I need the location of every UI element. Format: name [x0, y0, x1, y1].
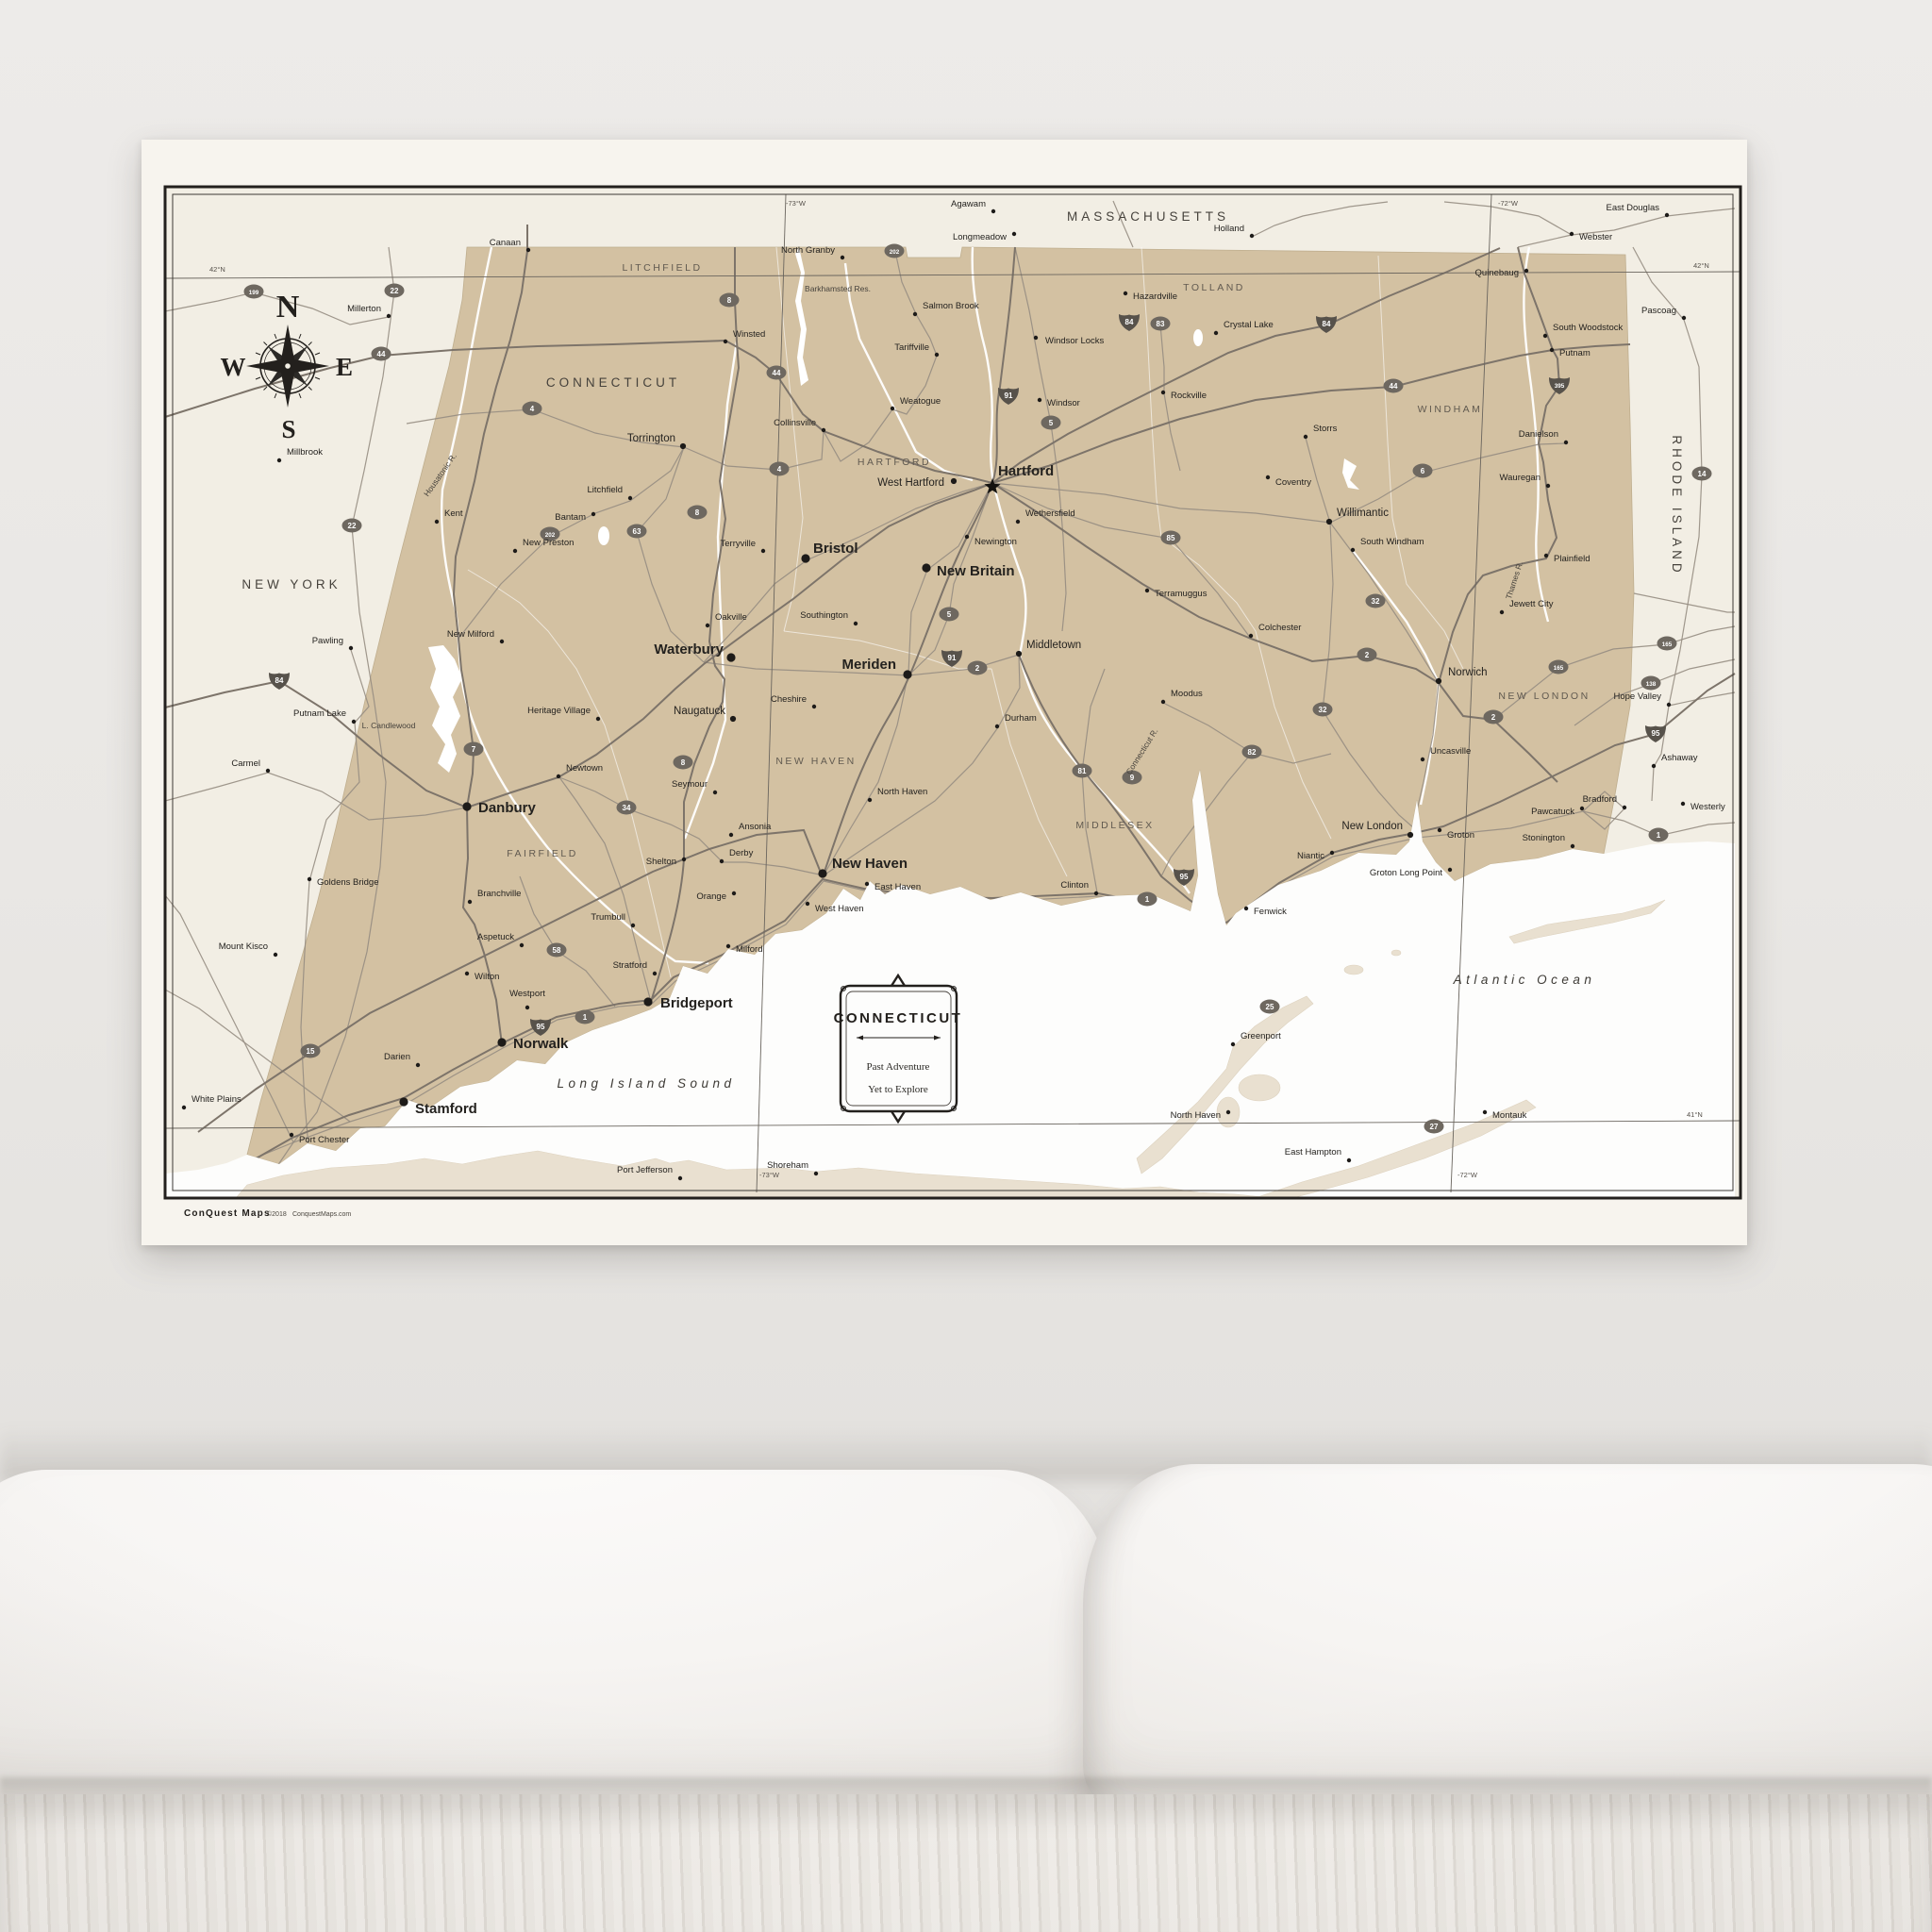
city-label: Collinsville [774, 418, 816, 428]
city-label: Heritage Village [527, 706, 591, 716]
compass-west-label: W [221, 353, 246, 381]
city-label: Hartford [998, 463, 1054, 479]
city-dot [462, 802, 471, 810]
route-number: 32 [1372, 597, 1380, 606]
route-number: 4 [777, 465, 782, 474]
city-dot [416, 1063, 420, 1067]
city-dot [726, 944, 730, 948]
city-label: Westerly [1690, 802, 1725, 812]
city-label: East Haven [874, 882, 921, 892]
route-number: 84 [1323, 320, 1331, 328]
city-label: Canaan [490, 238, 521, 248]
city-dot [468, 900, 472, 904]
city-dot [1330, 851, 1334, 855]
city-dot [274, 953, 277, 957]
city-dot [1347, 1158, 1351, 1162]
city-dot [1570, 232, 1574, 236]
city-dot [557, 774, 560, 778]
city-dot [1407, 832, 1413, 838]
city-label: White Plains [192, 1094, 241, 1105]
route-shield-32: 32 [1366, 594, 1386, 608]
city-label: Hope Valley [1613, 691, 1661, 702]
city-label: Meriden [841, 657, 896, 673]
route-number: 199 [249, 290, 259, 296]
city-label: Groton Long Point [1370, 868, 1442, 878]
city-label: Winsted [733, 329, 765, 340]
city-label: Rockville [1171, 391, 1207, 401]
couch-back-cushion-left [0, 1470, 1113, 1821]
city-label: Hazardville [1133, 291, 1177, 302]
city-label: Middletown [1026, 640, 1081, 651]
city-label: Pawling [312, 636, 343, 646]
city-label: Stonington [1523, 833, 1565, 843]
city-label: Norwich [1448, 667, 1488, 678]
city-label: Putnam [1559, 348, 1591, 358]
city-label: Salmon Brook [923, 301, 979, 311]
route-shield-7: 7 [464, 742, 484, 757]
city-label: Pascoag [1641, 306, 1676, 316]
city-label: New Britain [937, 563, 1015, 579]
brand-name: ConQuest Maps [184, 1208, 271, 1219]
city-dot [730, 716, 736, 722]
city-label: North Granby [781, 245, 835, 256]
city-dot [732, 891, 736, 895]
city-dot [1438, 828, 1441, 832]
route-shield-8: 8 [720, 293, 740, 308]
route-shield-15: 15 [301, 1044, 321, 1058]
map-label: Barkhamsted Res. [805, 284, 871, 293]
city-dot [1249, 634, 1253, 638]
map-label: RHODE ISLAND [1670, 435, 1684, 575]
route-shield-5: 5 [940, 608, 959, 622]
map-label: 42°N [209, 265, 225, 274]
city-label: Cheshire [771, 694, 807, 705]
city-label: Bradford [1583, 794, 1617, 805]
map-label: -73°W [759, 1171, 780, 1179]
city-label: Colchester [1258, 623, 1301, 633]
city-dot [497, 1038, 506, 1046]
city-dot [1667, 703, 1671, 707]
route-shield-44: 44 [767, 366, 787, 380]
city-label: Crystal Lake [1224, 320, 1274, 330]
route-number: 82 [1248, 748, 1257, 757]
city-label: Clinton [1060, 880, 1089, 891]
map-label: -73°W [786, 199, 807, 208]
city-dot [854, 622, 858, 625]
city-label: West Haven [815, 904, 864, 914]
city-dot [1012, 232, 1016, 236]
compass-north-label: N [276, 290, 300, 325]
city-dot [1543, 334, 1547, 338]
city-dot [1544, 554, 1548, 558]
city-label: South Windham [1360, 537, 1424, 547]
map-canvas: 8484849191959595395551111578884444444420… [142, 140, 1747, 1245]
city-dot [761, 549, 765, 553]
route-number: 44 [773, 369, 781, 377]
city-dot [1571, 844, 1574, 848]
city-label: Port Chester [299, 1135, 349, 1145]
city-label: East Douglas [1606, 203, 1659, 213]
route-number: 2 [1491, 713, 1496, 722]
city-dot [706, 624, 709, 627]
route-shield-25: 25 [1260, 1000, 1280, 1014]
route-number: 5 [947, 610, 952, 619]
city-label: Mount Kisco [219, 941, 268, 952]
city-label: Darien [384, 1052, 410, 1062]
city-label: Wauregan [1500, 473, 1541, 483]
city-label: Kent [444, 508, 463, 519]
city-label: Danielson [1519, 429, 1558, 440]
city-dot [1681, 802, 1685, 806]
city-dot [1580, 807, 1584, 810]
city-label: Terryville [721, 539, 756, 549]
city-dot [991, 209, 995, 213]
city-dot [520, 943, 524, 947]
city-label: Newtown [566, 763, 603, 774]
cartouche-line1: Past Adventure [867, 1061, 930, 1073]
route-number: 91 [1005, 391, 1013, 400]
map-label: MIDDLESEX [1075, 820, 1154, 831]
route-number: 165 [1662, 641, 1673, 648]
city-dot [1623, 806, 1626, 809]
route-shield-138: 138 [1641, 676, 1661, 691]
city-label: Waterbury [654, 641, 724, 658]
route-number: 8 [695, 508, 700, 517]
city-label: Windsor Locks [1045, 336, 1105, 346]
city-dot [1524, 269, 1528, 273]
city-label: New Haven [832, 856, 908, 872]
map-label: 42°N [1693, 261, 1709, 270]
city-label: Coventry [1275, 477, 1311, 488]
route-number: 14 [1698, 470, 1707, 478]
city-dot [1161, 391, 1165, 394]
route-number: 34 [623, 804, 631, 812]
city-label: Tariffville [894, 342, 929, 353]
city-label: Montauk [1492, 1110, 1527, 1121]
city-label: Webster [1579, 232, 1612, 242]
route-shield-4: 4 [770, 462, 790, 476]
route-number: 138 [1646, 681, 1657, 688]
route-shield-44: 44 [1384, 379, 1404, 393]
photo-scene: 8484849191959595395551111578884444444420… [0, 0, 1932, 1932]
map-label: NEW YORK [241, 577, 341, 591]
city-dot [818, 869, 826, 877]
city-label: Willimantic [1337, 508, 1389, 519]
cartouche-title: CONNECTICUT [834, 1010, 963, 1026]
city-dot [277, 458, 281, 462]
route-shield-2: 2 [968, 661, 988, 675]
route-number: 27 [1430, 1123, 1439, 1131]
route-shield-1: 1 [1649, 828, 1669, 842]
compass-east-label: E [336, 353, 353, 381]
route-number: 1 [1657, 831, 1661, 840]
compass-south-label: S [281, 415, 295, 443]
city-label: Uncasville [1430, 746, 1471, 757]
city-dot [1124, 291, 1127, 295]
city-label: Port Jefferson [617, 1165, 673, 1175]
cartouche-line2: Yet to Explore [868, 1084, 928, 1095]
city-dot [1038, 398, 1041, 402]
route-number: 84 [275, 676, 284, 685]
route-number: 2 [975, 664, 980, 673]
map-label: -72°W [1498, 199, 1519, 208]
city-label: Windsor [1047, 398, 1080, 408]
route-number: 165 [1554, 665, 1564, 672]
map-label: LITCHFIELD [622, 262, 702, 274]
city-dot [1546, 484, 1550, 488]
city-dot [1266, 475, 1270, 479]
city-label: Weatogue [900, 396, 941, 407]
city-label: Millbrook [287, 447, 323, 458]
route-shield-5: 5 [1041, 416, 1061, 430]
city-dot [1326, 519, 1332, 525]
route-number: 81 [1078, 767, 1087, 775]
city-label: Longmeadow [953, 232, 1007, 242]
route-shield-165: 165 [1549, 660, 1569, 675]
route-shield-14: 14 [1692, 467, 1712, 481]
route-number: 202 [890, 249, 900, 256]
route-shield-22: 22 [342, 519, 362, 533]
city-dot [525, 1006, 529, 1009]
city-dot [349, 646, 353, 650]
map-label: TOLLAND [1183, 282, 1245, 293]
city-label: Branchville [477, 889, 521, 899]
city-label: Fenwick [1254, 907, 1287, 917]
city-label: Holland [1214, 224, 1244, 234]
route-number: 1 [1145, 895, 1150, 904]
city-label: Millerton [347, 304, 381, 314]
city-dot [182, 1106, 186, 1109]
route-number: 8 [681, 758, 686, 767]
route-shield-83: 83 [1151, 317, 1171, 331]
city-label: Moodus [1171, 689, 1203, 699]
city-dot [724, 340, 727, 343]
city-dot [352, 720, 356, 724]
route-shield-58: 58 [547, 943, 567, 958]
city-dot [526, 248, 530, 252]
city-label: East Hampton [1285, 1147, 1341, 1158]
map-label: Atlantic Ocean [1453, 973, 1596, 987]
city-dot [500, 640, 504, 643]
couch-seat-cushion [0, 1794, 1932, 1932]
city-dot [387, 314, 391, 318]
route-number: 7 [472, 745, 476, 754]
route-number: 44 [377, 350, 386, 358]
city-dot [806, 902, 809, 906]
map-label: WINDHAM [1418, 404, 1483, 415]
city-dot [1304, 435, 1307, 439]
city-label: Naugatuck [674, 706, 725, 717]
map-label: 41°N [1687, 1110, 1703, 1119]
city-dot [1226, 1110, 1230, 1114]
city-label: Bridgeport [660, 995, 733, 1011]
city-dot [922, 563, 930, 572]
city-dot [1244, 907, 1248, 910]
city-dot [1145, 589, 1149, 592]
city-label: Durham [1005, 713, 1037, 724]
city-label: Putnam Lake [293, 708, 346, 719]
city-dot [1682, 316, 1686, 320]
city-dot [913, 312, 917, 316]
route-number: 95 [1180, 873, 1189, 881]
map-label: L. Candlewood [362, 721, 416, 730]
city-dot [935, 353, 939, 357]
map-label: Long Island Sound [557, 1076, 735, 1091]
city-label: New London [1341, 821, 1403, 832]
city-label: West Hartford [877, 477, 944, 489]
city-dot [678, 1176, 682, 1180]
city-label: Ansonia [739, 822, 772, 832]
city-dot [1034, 336, 1038, 340]
city-label: Derby [729, 848, 754, 858]
city-dot [995, 724, 999, 728]
route-shield-4: 4 [523, 402, 542, 416]
route-number: 2 [1365, 651, 1370, 659]
route-shield-63: 63 [627, 525, 647, 539]
city-dot [290, 1133, 293, 1137]
city-dot [266, 769, 270, 773]
route-shield-44: 44 [372, 347, 391, 361]
city-dot [1564, 441, 1568, 444]
city-label: Newington [974, 537, 1017, 547]
city-label: Stratford [613, 960, 647, 971]
route-number: 15 [307, 1047, 315, 1056]
map-label: MASSACHUSETTS [1067, 209, 1229, 224]
route-number: 6 [1421, 467, 1425, 475]
city-dot [965, 535, 969, 539]
route-shield-81: 81 [1073, 764, 1092, 778]
website-text: ConquestMaps.com [292, 1211, 351, 1218]
city-dot [720, 859, 724, 863]
city-dot [729, 833, 733, 837]
city-label: Trumbull [591, 912, 625, 923]
route-shield-199: 199 [244, 285, 264, 299]
city-label: Pawcatuck [1531, 807, 1574, 817]
city-dot [596, 717, 600, 721]
route-number: 25 [1266, 1003, 1274, 1011]
city-dot [465, 972, 469, 975]
city-label: Wilton [475, 972, 499, 982]
city-label: Milford [736, 944, 763, 955]
city-dot [713, 791, 717, 794]
city-dot [1351, 548, 1355, 552]
city-dot [643, 997, 652, 1006]
route-shield-85: 85 [1161, 531, 1181, 545]
city-label: Terramuggus [1155, 589, 1207, 599]
city-label: Jewett City [1509, 599, 1554, 609]
city-dot [801, 554, 809, 562]
city-label: Niantic [1297, 851, 1324, 861]
city-dot [435, 520, 439, 524]
city-label: North Haven [877, 787, 927, 797]
city-dot [628, 496, 632, 500]
route-shield-202: 202 [885, 244, 905, 258]
city-label: Goldens Bridge [317, 877, 378, 888]
route-shield-22: 22 [385, 284, 405, 298]
city-dot [1094, 891, 1098, 895]
city-label: New Milford [447, 629, 494, 640]
city-dot [1550, 348, 1554, 352]
route-shield-2: 2 [1357, 648, 1377, 662]
city-dot [726, 653, 735, 661]
route-number: 58 [553, 946, 561, 955]
city-dot [513, 549, 517, 553]
route-number: 395 [1555, 383, 1565, 390]
route-shield-27: 27 [1424, 1120, 1444, 1134]
route-number: 5 [1049, 419, 1054, 427]
city-dot [822, 428, 825, 432]
city-label: Orange [696, 891, 726, 902]
city-dot [814, 1172, 818, 1175]
city-label: Storrs [1313, 424, 1338, 434]
route-shield-34: 34 [617, 801, 637, 815]
connecticut-map: 8484849191959595395551111578884444444420… [142, 140, 1747, 1245]
city-label: Shoreham [767, 1160, 808, 1171]
route-shield-32: 32 [1313, 703, 1333, 717]
city-label: Torrington [627, 433, 675, 444]
map-label: NEW HAVEN [775, 756, 856, 767]
city-dot [653, 972, 657, 975]
route-number: 22 [391, 287, 399, 295]
city-dot [308, 877, 311, 881]
route-number: 22 [348, 522, 357, 530]
route-number: 4 [530, 405, 535, 413]
city-dot [399, 1097, 408, 1106]
route-number: 32 [1319, 706, 1327, 714]
city-label: Bantam [555, 512, 586, 523]
city-label: Southington [800, 610, 848, 621]
city-label: Norwalk [513, 1036, 569, 1052]
route-shield-8: 8 [674, 756, 693, 770]
city-dot [865, 882, 869, 886]
city-label: North Haven [1171, 1110, 1221, 1121]
city-dot [591, 512, 595, 516]
map-label: NEW LONDON [1498, 691, 1590, 702]
city-label: Ashaway [1661, 753, 1698, 763]
city-label: Agawam [951, 199, 986, 209]
couch-back-cushion-right [1083, 1464, 1932, 1823]
city-label: Oakville [715, 612, 747, 623]
city-dot [1016, 651, 1022, 657]
city-dot [682, 858, 686, 861]
city-dot [1448, 868, 1452, 872]
city-dot [1016, 520, 1020, 524]
city-dot [1421, 758, 1424, 761]
city-label: Danbury [478, 800, 537, 816]
copyright-text: ©2018 [267, 1210, 287, 1218]
city-dot [1250, 234, 1254, 238]
route-shield-1: 1 [1138, 892, 1158, 907]
city-dot [1483, 1110, 1487, 1114]
route-number: 8 [727, 296, 732, 305]
city-dot [951, 478, 957, 484]
route-number: 63 [633, 527, 641, 536]
map-label: CONNECTICUT [546, 375, 680, 390]
city-label: Plainfield [1554, 554, 1591, 564]
city-label: Aspetuck [477, 932, 514, 942]
city-label: Groton [1447, 830, 1474, 841]
route-number: 1 [583, 1013, 588, 1022]
city-label: Seymour [672, 779, 708, 790]
map-label: HARTFORD [858, 457, 931, 468]
route-number: 95 [1652, 729, 1660, 738]
route-shield-6: 6 [1413, 464, 1433, 478]
route-shield-165: 165 [1657, 637, 1677, 651]
route-number: 44 [1390, 382, 1398, 391]
city-label: Litchfield [588, 485, 624, 495]
city-dot [841, 256, 844, 259]
route-shield-2: 2 [1484, 710, 1504, 724]
